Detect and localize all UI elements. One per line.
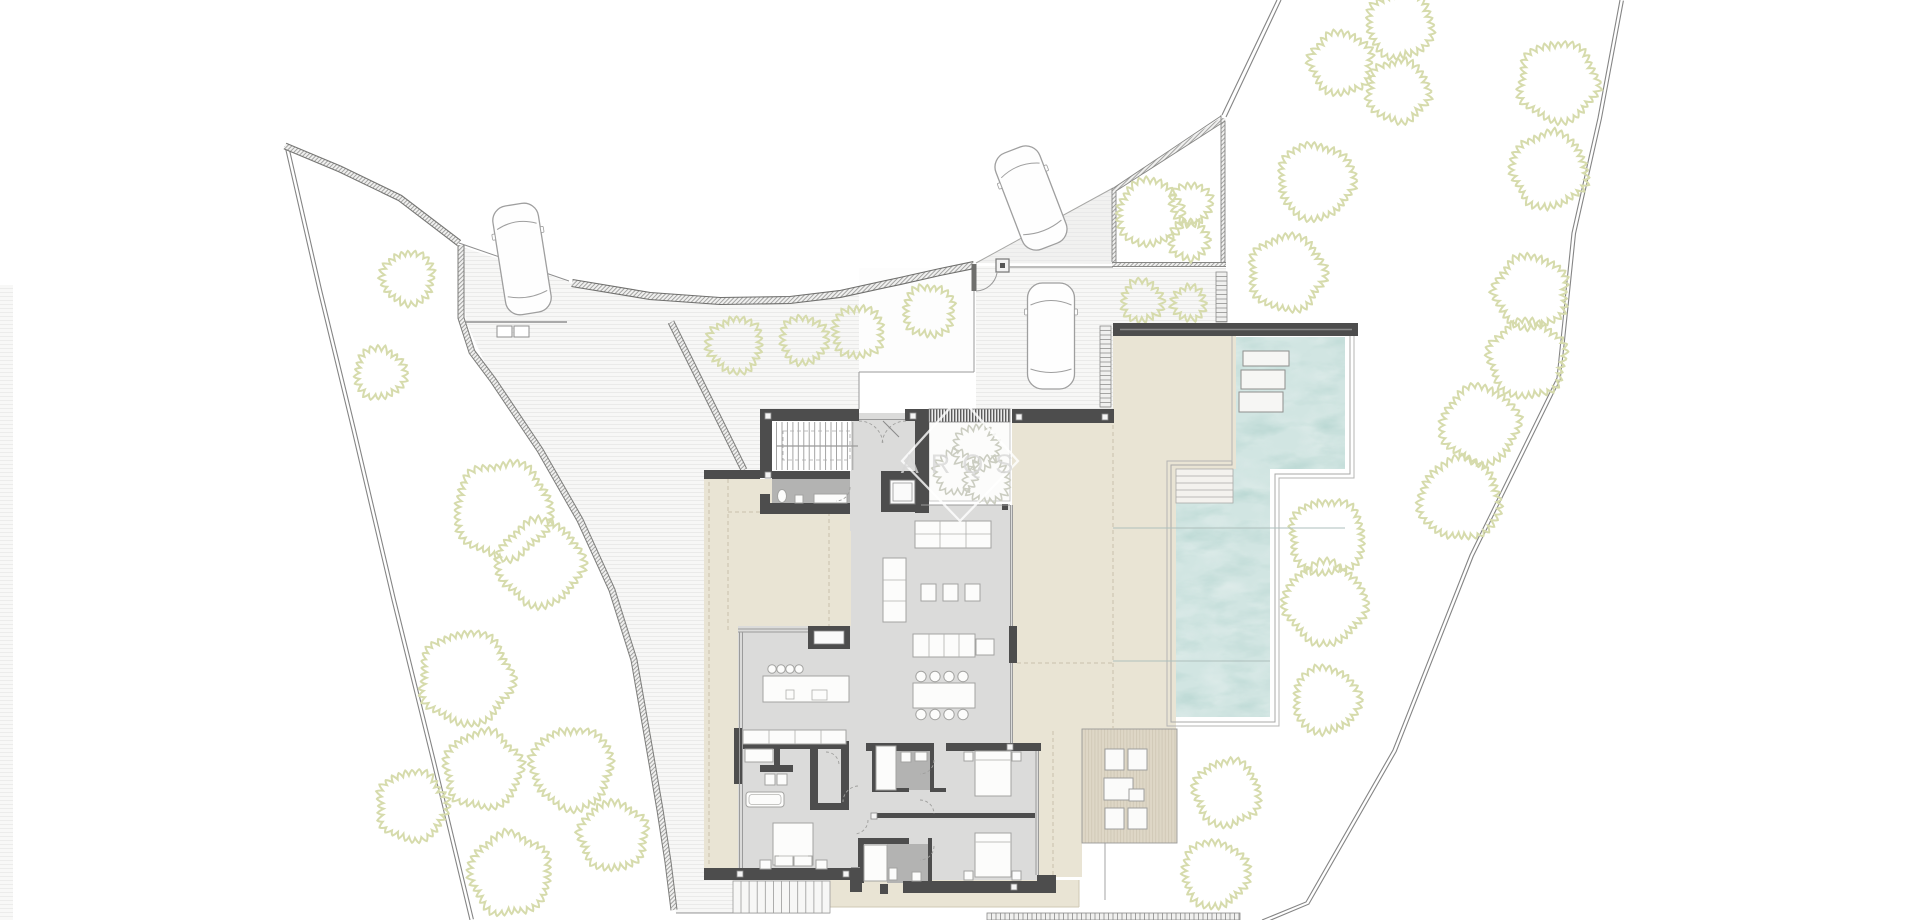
svg-text:ARQS: ARQS <box>901 449 1026 479</box>
